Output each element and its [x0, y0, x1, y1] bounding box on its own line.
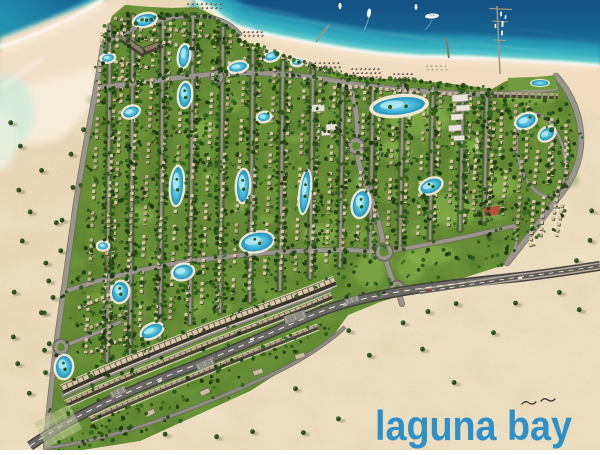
- svg-text:laguna bay: laguna bay: [375, 402, 573, 449]
